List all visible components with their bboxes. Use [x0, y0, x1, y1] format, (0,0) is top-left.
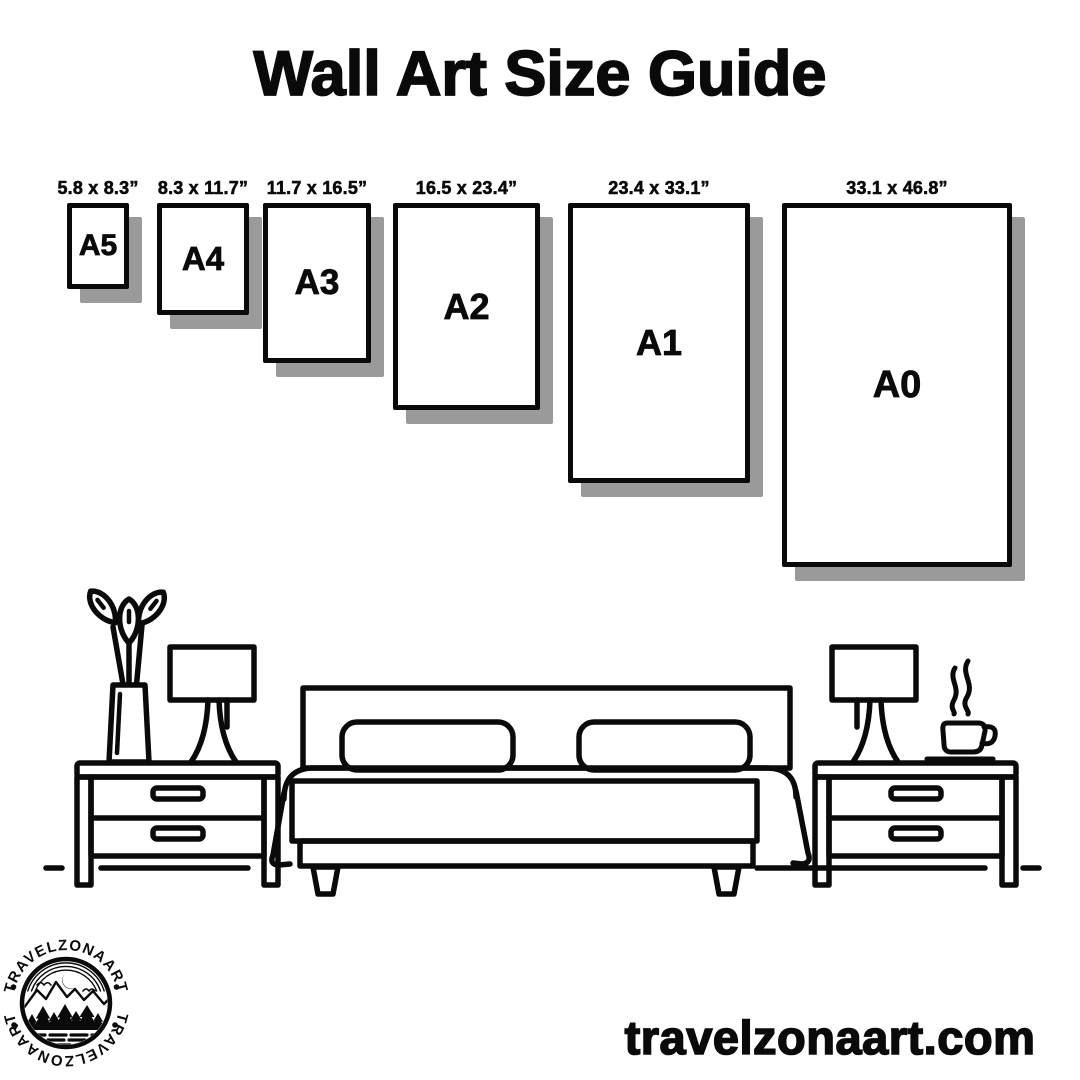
frame-a1: 23.4 x 33.1” A1	[568, 203, 750, 483]
bedroom-illustration	[0, 575, 1080, 905]
mountains-icon	[23, 982, 109, 1009]
frame-a3-dimensions: 11.7 x 16.5”	[267, 178, 368, 199]
bed-rail	[300, 841, 753, 866]
frame-a2: 16.5 x 23.4” A2	[393, 203, 540, 410]
frame-a0: 33.1 x 46.8” A0	[782, 203, 1012, 567]
frame-a4: 8.3 x 11.7” A4	[157, 203, 249, 315]
drawer-handle	[153, 828, 203, 839]
frame-a0-dimensions: 33.1 x 46.8”	[846, 178, 947, 199]
frame-a1-dimensions: 23.4 x 33.1”	[608, 178, 709, 199]
table-lamp-left	[170, 647, 254, 762]
cup-body	[943, 723, 985, 752]
frame-a4-label: A4	[182, 240, 224, 278]
bed	[272, 688, 809, 894]
website-url: travelzonaart.com	[600, 1010, 1060, 1065]
bed-leg	[313, 867, 338, 894]
drawer-handle	[153, 788, 203, 799]
moon-icon	[62, 974, 77, 989]
flower-leaf	[120, 599, 139, 643]
frame-a5-dimensions: 5.8 x 8.3”	[57, 178, 138, 199]
frame-a1-label: A1	[636, 322, 682, 364]
frame-a4-dimensions: 8.3 x 11.7”	[158, 178, 248, 199]
frame-a0-label: A0	[873, 364, 922, 407]
bed-leg	[714, 867, 739, 894]
frame-a2-label: A2	[443, 286, 489, 328]
lamp-shade	[170, 647, 254, 700]
frame-a5: 5.8 x 8.3” A5	[67, 203, 129, 289]
frame-a5-label: A5	[79, 229, 117, 263]
steam-icon	[952, 668, 956, 714]
lamp-shade	[832, 647, 916, 700]
flower-leaf	[84, 586, 122, 628]
frame-a3: 11.7 x 16.5” A3	[263, 203, 371, 363]
lamp-base	[191, 700, 208, 762]
pillow	[342, 722, 513, 770]
coffee-cup	[927, 661, 995, 759]
brand-logo-badge: TRAVELZONAART TRAVELZONAART	[1, 933, 131, 1073]
vase-highlight	[117, 694, 120, 753]
mattress	[292, 781, 757, 841]
lamp-base	[881, 700, 898, 762]
frame-a3-label: A3	[295, 263, 340, 303]
vase-with-flowers	[84, 586, 170, 762]
drawer-handle	[891, 828, 941, 839]
wall-art-size-guide-poster: Wall Art Size Guide 5.8 x 8.3” A5 8.3 x …	[0, 0, 1080, 1080]
pine-trees-icon	[25, 1004, 106, 1030]
frame-a2-dimensions: 16.5 x 23.4”	[416, 178, 517, 199]
drawer-handle	[891, 788, 941, 799]
steam-icon	[965, 661, 970, 714]
blanket-drape-right	[793, 791, 809, 864]
page-title: Wall Art Size Guide	[0, 38, 1080, 110]
pillow	[579, 722, 750, 770]
table-lamp-right	[832, 647, 916, 762]
blanket-drape-left	[272, 793, 290, 865]
